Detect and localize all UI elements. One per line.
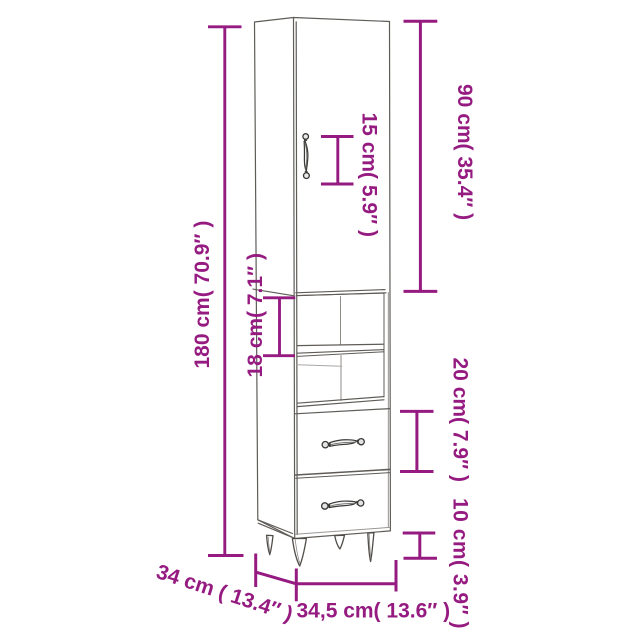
- svg-text:34,5 cm( 13.6″ ): 34,5 cm( 13.6″ ): [297, 600, 451, 623]
- svg-text:10 cm( 3.9″ ): 10 cm( 3.9″ ): [448, 498, 471, 629]
- svg-text:34 cm ( 13.4″ ): 34 cm ( 13.4″ ): [153, 560, 295, 626]
- svg-text:18 cm( 7.1″ ): 18 cm( 7.1″ ): [244, 253, 267, 377]
- svg-text:90 cm( 35.4″ ): 90 cm( 35.4″ ): [453, 84, 476, 220]
- svg-text:180 cm( 70.9″ ): 180 cm( 70.9″ ): [191, 221, 214, 369]
- svg-text:15 cm( 5.9″ ): 15 cm( 5.9″ ): [357, 113, 380, 237]
- svg-text:20 cm( 7.9″ ): 20 cm( 7.9″ ): [448, 358, 471, 482]
